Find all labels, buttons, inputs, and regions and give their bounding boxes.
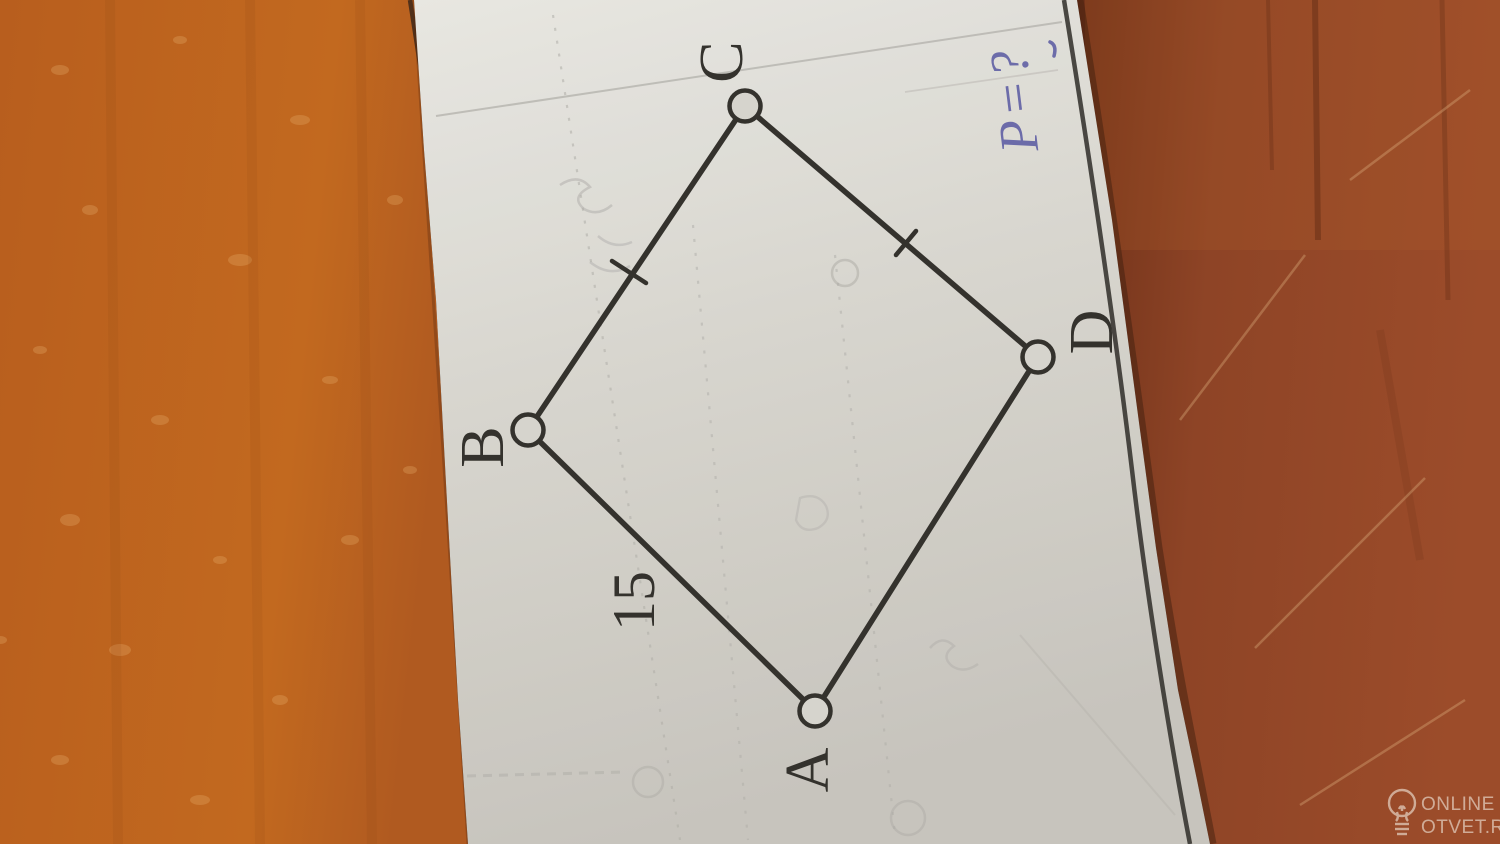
watermark-line2: OTVET.RU	[1421, 817, 1500, 838]
watermark-line1: ONLINE	[1421, 794, 1495, 815]
photo-canvas: A B C D 15 P=? ONLINE OTVET.RU	[0, 0, 1500, 844]
paper-shade-overlay	[414, 0, 1210, 844]
wood-table-left	[0, 0, 468, 844]
